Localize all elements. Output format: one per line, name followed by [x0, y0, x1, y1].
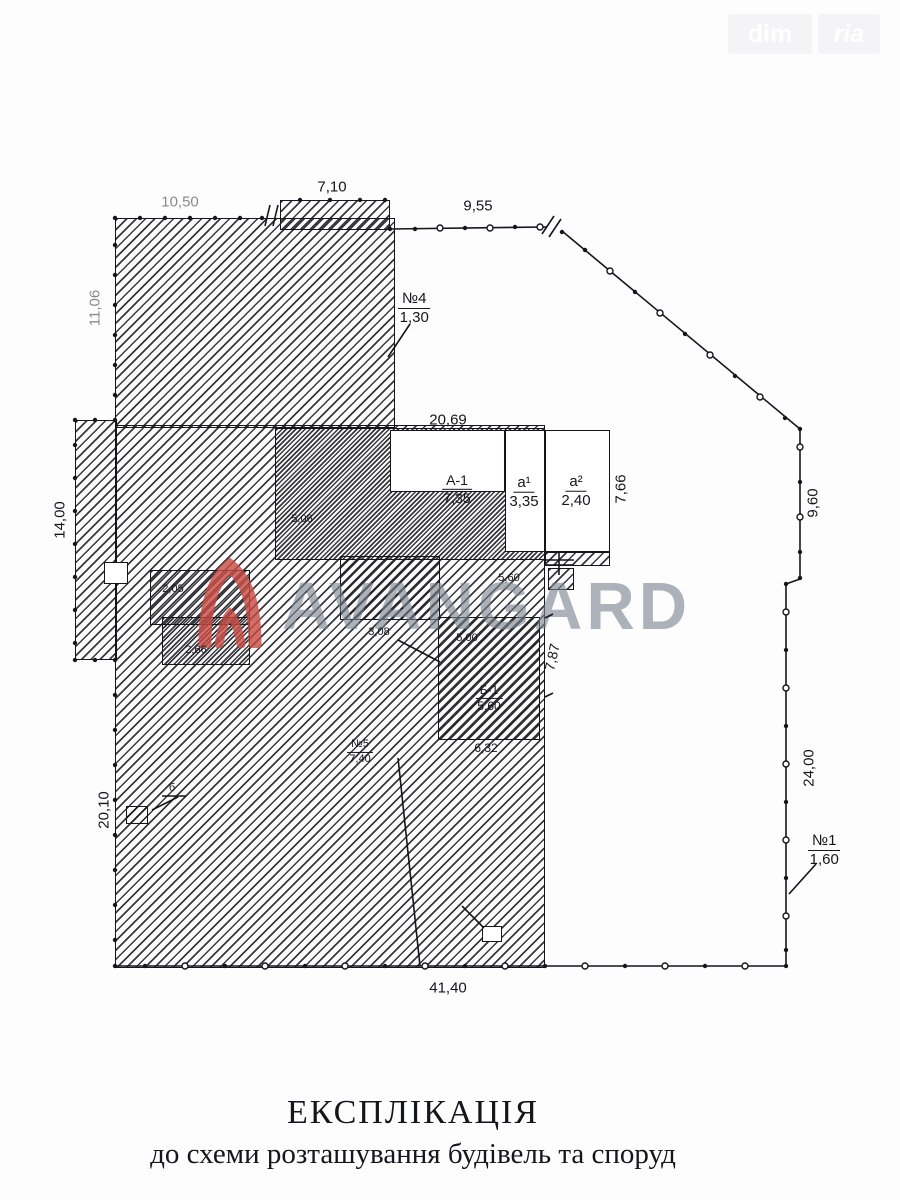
dim-building-width: 20,69: [429, 412, 467, 429]
dim-logo-tile: dim: [728, 14, 812, 54]
dim-building-depth: 7,66: [613, 474, 630, 503]
dim-room-3: 5,00: [456, 632, 477, 644]
caption-title: ЕКСПЛІКАЦІЯ: [0, 1094, 826, 1132]
dim-top-step: 7,10: [317, 179, 346, 196]
mark-b1-label: Б-1: [476, 684, 503, 699]
survey-points-fence: [143, 224, 803, 969]
mark-no1-label: №1: [808, 833, 840, 851]
mark-annex-a1: а¹ 3,35: [509, 475, 538, 510]
dim-right-upper: 9,60: [805, 488, 822, 517]
mark-b1-value: 5,60: [476, 699, 503, 713]
caption-subtitle: до схеми розташування будівель та споруд: [0, 1138, 826, 1171]
mark-a1-label: А-1: [442, 473, 472, 490]
mark-no5: №5 7,40: [347, 739, 373, 765]
dim-left-lower: 20,10: [96, 791, 113, 829]
mark-no4-value: 1,30: [398, 309, 430, 326]
mark-no4: №4 1,30: [398, 291, 430, 326]
dim-top-left: 10,50: [161, 194, 199, 211]
mark-annex-a2: а² 2,40: [561, 474, 590, 509]
mark-annex-a1-label: а¹: [513, 475, 534, 493]
dim-left-upper: 11,06: [87, 290, 104, 326]
mark-a1: А-1 7,35: [442, 473, 472, 505]
mark-no1-value: 1,60: [808, 851, 840, 868]
mark-no1: №1 1,60: [808, 833, 840, 868]
scanned-site-plan: AVANGARD: [0, 0, 900, 1200]
label-small-b: б: [169, 782, 175, 794]
dim-right-lower: 24,00: [801, 749, 818, 787]
dim-bottom: 41,40: [429, 980, 467, 997]
dim-top-right: 9,55: [463, 198, 492, 215]
dim-left-wing: 14,00: [52, 501, 69, 539]
mark-b1: Б-1 5,60: [476, 684, 503, 712]
dim-room-4: 5,60: [498, 572, 519, 584]
mark-no5-label: №5: [347, 739, 373, 753]
dim-room-2: 3,08: [368, 626, 389, 638]
dim-shed-1: 2,05: [162, 583, 183, 595]
dim-ria-logo: dim ria: [728, 14, 880, 54]
mark-annex-a2-value: 2,40: [561, 492, 590, 509]
dim-room-1: 5,06: [291, 513, 312, 525]
mark-no4-label: №4: [398, 291, 430, 309]
mark-annex-a1-value: 3,35: [509, 493, 538, 510]
dim-shed-2: 2,66: [185, 644, 206, 656]
ria-logo-tile: ria: [818, 14, 880, 54]
caption-block: ЕКСПЛІКАЦІЯ до схеми розташування будіве…: [0, 1094, 826, 1171]
mark-no5-value: 7,40: [347, 753, 373, 766]
mark-a1-value: 7,35: [442, 490, 472, 506]
dim-b1-bottom: 6,32: [474, 741, 497, 755]
mark-annex-a2-label: а²: [565, 474, 586, 492]
